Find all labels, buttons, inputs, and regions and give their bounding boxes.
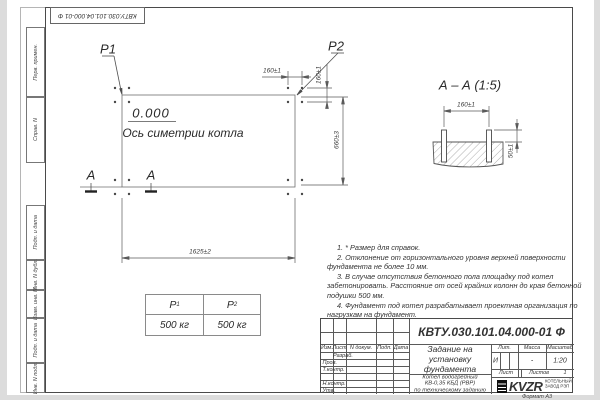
section-bolt-right — [487, 130, 492, 162]
load-table-value-p1: 500 кг — [146, 315, 203, 335]
tb-col-izm: Изм. — [321, 345, 333, 351]
tb-col-list: Лист — [332, 345, 346, 351]
tb-col-data: Дата — [394, 345, 409, 351]
tb-row-prov: Пров. — [323, 360, 338, 366]
load-table: P1 P2 500 кг 500 кг — [145, 294, 261, 336]
note-3: 3. В случае отсутствия бетонного пола пл… — [327, 272, 585, 301]
drawing-sheet-view: Перв. примен. Справ. N Подп. и дата Инв.… — [0, 0, 600, 400]
load-table-header-p2: P2 — [204, 295, 260, 314]
load-point-p1-label: P1 — [100, 42, 116, 57]
title-block: Изм. Лист N докум. Подп. Дата Разраб. Пр… — [320, 318, 573, 393]
section-dim-160-text: 160±1 — [457, 102, 475, 109]
tb-lit-label: Лит. — [498, 345, 511, 351]
plan-outline — [80, 95, 295, 187]
tb-designation: КВТУ.030.101.04.000-01 Ф — [418, 325, 565, 339]
format-note: Формат А3 — [522, 394, 552, 400]
section-letter-left: А — [87, 168, 96, 183]
tb-doc-title: Задание на установку фундамента — [410, 344, 490, 374]
tb-mass-label: Масса — [524, 345, 540, 351]
section-dim-50-text: 50±1 — [508, 144, 515, 158]
dim-160v-text: 160±1 — [316, 66, 323, 84]
load-table-header-p1: P1 — [146, 295, 203, 314]
tb-scale-value: 1:20 — [553, 357, 567, 364]
dim-1625-text: 1625±2 — [189, 249, 211, 256]
load-point-p2-label: P2 — [328, 39, 344, 54]
tb-sheets-value: 1 — [563, 370, 566, 376]
section-bolt-left — [442, 130, 447, 162]
tb-lit-value: И — [493, 357, 498, 364]
tb-mass-value: - — [531, 357, 533, 364]
tb-row-razrab: Разраб. — [333, 353, 353, 359]
kvzr-logo-caption: КОТЕЛЬНЫЙ ЗАВОД РЭП — [545, 380, 572, 390]
tb-scale-label: Масштаб — [547, 345, 573, 351]
kvzr-logo-text: KVZR — [509, 379, 542, 394]
dim-660-text: 660±3 — [334, 131, 341, 149]
tb-product-name: Котел водогрейный КВ-0,35 КБД (РВР) по т… — [410, 374, 490, 393]
elevation-mark: 0.000 — [132, 106, 170, 121]
section-view-title: А – А (1:5) — [439, 78, 501, 93]
tb-col-ndoc: N докум. — [350, 345, 372, 351]
tb-sheet-label: Лист — [499, 370, 513, 376]
dim-660 — [301, 97, 348, 185]
note-1: 1. * Размер для справок. — [327, 243, 585, 253]
dim-160h-text: 160±1 — [263, 68, 281, 75]
section-view-concrete — [433, 130, 503, 167]
tb-col-podp: Подп. — [377, 345, 392, 351]
technical-notes: 1. * Размер для справок. 2. Отклонение о… — [327, 243, 585, 320]
load-table-value-p2: 500 кг — [204, 315, 260, 335]
symmetry-axis-label: Ось симетрии котла — [122, 126, 243, 140]
tb-row-utv: Утв. — [323, 388, 336, 394]
tb-sheets-label: Листов — [529, 370, 549, 376]
kvzr-emblem-icon — [497, 380, 507, 393]
leader-p1 — [102, 56, 122, 95]
section-letter-right: А — [147, 168, 156, 183]
note-2: 2. Отклонение от горизонтального уровня … — [327, 253, 585, 272]
anchor-bolt-dots — [114, 87, 303, 195]
section-dim-160 — [444, 106, 489, 127]
note-4: 4. Фундамент под котел разрабатывает про… — [327, 301, 585, 320]
tb-row-tkontr: Т.контр. — [323, 367, 345, 373]
tb-row-nkontr: Н.контр. — [323, 381, 346, 387]
